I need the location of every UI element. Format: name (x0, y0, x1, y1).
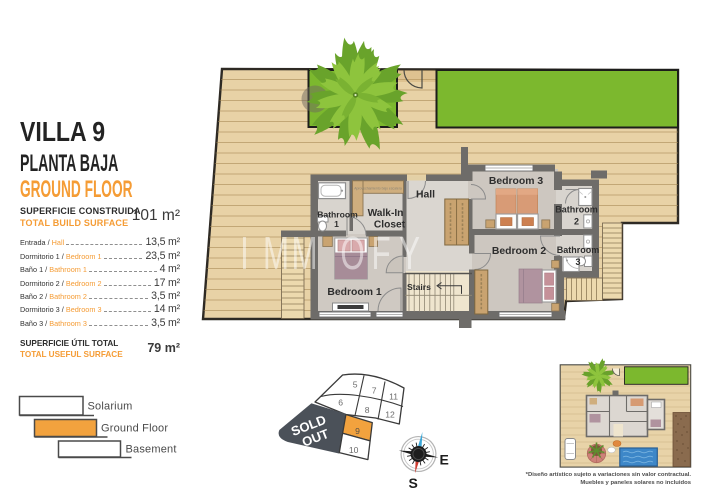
svg-text:10: 10 (349, 445, 359, 455)
svg-text:Basement: Basement (126, 444, 177, 456)
svg-text:S: S (409, 475, 418, 491)
svg-text:Hall: Hall (416, 190, 435, 201)
svg-text:Bedroom 2: Bedroom 2 (492, 246, 546, 257)
svg-text:Bedroom 3: Bedroom 3 (489, 176, 543, 187)
svg-text:Y: Y (399, 228, 420, 279)
svg-text:9: 9 (355, 426, 360, 436)
svg-text:Bathroom: Bathroom (557, 245, 600, 255)
svg-text:11: 11 (389, 391, 398, 401)
svg-text:5: 5 (353, 379, 358, 389)
svg-text:1: 1 (334, 219, 339, 229)
svg-text:M: M (291, 228, 317, 279)
svg-text:M: M (263, 228, 289, 279)
svg-text:12: 12 (385, 410, 395, 420)
svg-text:F: F (371, 228, 390, 279)
svg-text:Bedroom 1: Bedroom 1 (327, 287, 381, 298)
svg-text:O: O (340, 228, 364, 279)
svg-text:6: 6 (338, 397, 343, 407)
svg-text:Ground Floor: Ground Floor (101, 423, 168, 435)
svg-text:Solarium: Solarium (88, 401, 133, 413)
svg-text:Bathroom: Bathroom (555, 204, 598, 214)
svg-text:I: I (240, 228, 249, 279)
svg-text:8: 8 (365, 405, 370, 415)
svg-text:7: 7 (372, 385, 377, 395)
svg-text:Walk-In: Walk-In (368, 208, 404, 219)
svg-text:2: 2 (574, 216, 579, 226)
svg-text:Aprovechamiento bajo escalera: Aprovechamiento bajo escalera (354, 186, 402, 190)
svg-text:E: E (440, 452, 449, 468)
svg-text:Stairs: Stairs (407, 282, 431, 292)
svg-text:3: 3 (575, 257, 580, 267)
